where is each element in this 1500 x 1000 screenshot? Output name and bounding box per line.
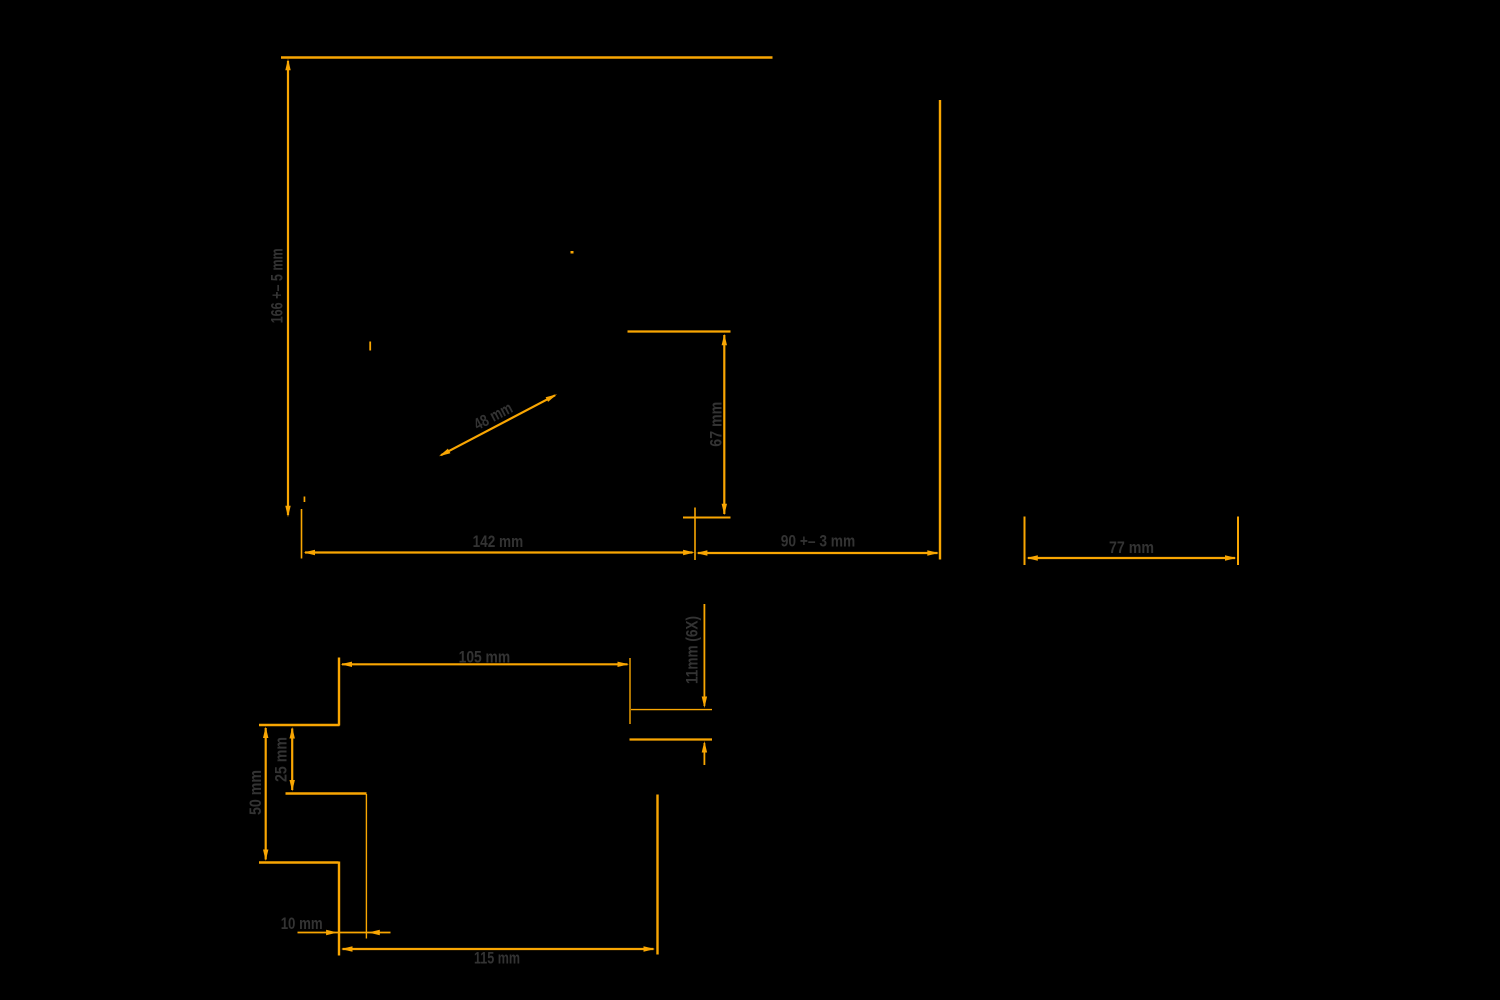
svg-text:142 mm: 142 mm <box>473 533 524 551</box>
svg-text:90 +– 3 mm: 90 +– 3 mm <box>781 533 856 551</box>
svg-text:115 mm: 115 mm <box>474 950 520 968</box>
svg-text:25 mm: 25 mm <box>273 737 291 782</box>
svg-text:77 mm: 77 mm <box>1109 539 1154 557</box>
svg-text:10 mm: 10 mm <box>281 915 323 933</box>
svg-text:11mm (6X): 11mm (6X) <box>684 616 702 684</box>
svg-text:67 mm: 67 mm <box>707 402 725 447</box>
svg-text:166 +– 5 mm: 166 +– 5 mm <box>269 248 287 323</box>
svg-text:50 mm: 50 mm <box>247 770 265 815</box>
svg-text:105 mm: 105 mm <box>459 649 511 667</box>
